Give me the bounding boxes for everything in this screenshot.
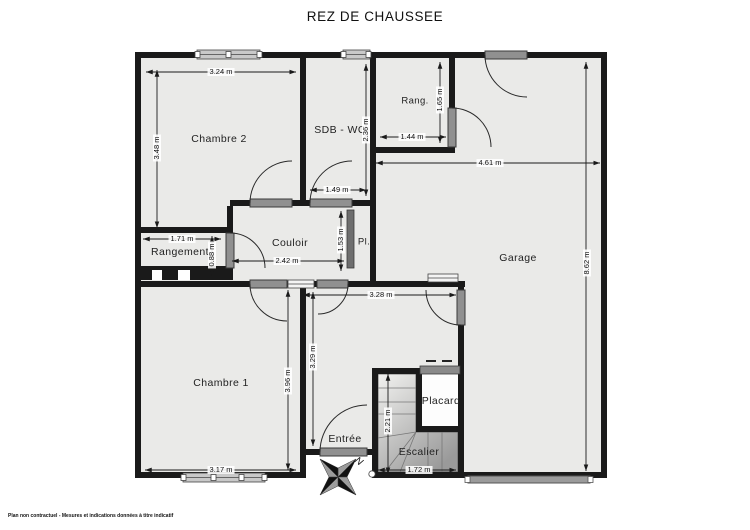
room-label-rang: Rang.	[401, 96, 428, 107]
floor-plan-drawing: N	[0, 0, 750, 530]
door-panel-entree-garage	[457, 290, 465, 325]
dimension-label-rang-height: 1.65 m	[436, 87, 444, 114]
room-label-garage: Garage	[499, 252, 536, 264]
door-panel-chambre2	[250, 199, 292, 207]
dimension-label-chambre1-width: 3.17 m	[208, 466, 235, 474]
dimension-label-couloir-width: 2.42 m	[274, 257, 301, 265]
room-label-pl: Pl.	[358, 237, 370, 248]
dimension-label-escalier-height: 2.21 m	[384, 408, 392, 435]
dimension-label-escalier-width: 1.72 m	[406, 466, 433, 474]
disclaimer-text: Plan non contractuel - Mesures et indica…	[8, 513, 173, 519]
dimension-label-chambre2-height: 3.48 m	[153, 135, 161, 162]
window-chambre2	[195, 50, 262, 59]
room-label-placard: Placard	[422, 395, 460, 407]
door-panel-chambre1	[250, 280, 287, 288]
room-label-couloir: Couloir	[272, 237, 308, 249]
dimension-label-rangement-height: 0.88 m	[208, 242, 216, 269]
dimension-label-sdb-width: 1.49 m	[324, 186, 351, 194]
dimension-label-garage-height: 8.62 m	[583, 250, 591, 277]
dimension-label-couloir-height: 1.53 m	[337, 227, 345, 254]
door-panel-sdb	[310, 199, 352, 207]
room-label-escalier: Escalier	[399, 446, 440, 458]
dimension-label-garage-width: 4.61 m	[477, 159, 504, 167]
dimension-label-sdb-height: 2.36 m	[362, 117, 370, 144]
door-panel-garage-top	[485, 51, 527, 59]
dimension-label-chambre2-width: 3.24 m	[208, 68, 235, 76]
window-couloir-entree	[288, 280, 314, 288]
dimension-label-rangement-width: 1.71 m	[169, 235, 196, 243]
door-panel-rangement	[226, 233, 234, 268]
window-sdb	[341, 50, 371, 59]
stair-start-marker	[369, 471, 375, 477]
dimension-label-rang-width: 1.44 m	[399, 133, 426, 141]
dimension-label-entree-height: 3.29 m	[309, 344, 317, 371]
dimension-label-entree-width: 3.28 m	[368, 291, 395, 299]
sliding-door-pl	[347, 210, 354, 268]
room-label-entree: Entrée	[328, 433, 361, 445]
room-label-sdb-wc: SDB - WC	[314, 124, 366, 136]
window-chambre1	[181, 473, 267, 482]
room-label-chambre-1: Chambre 1	[193, 377, 249, 389]
floor-plan-page: REZ DE CHAUSSEE	[0, 0, 750, 530]
door-panel-entree-hall	[317, 280, 348, 288]
garage-door	[465, 476, 593, 483]
room-label-rangement: Rangement	[151, 246, 209, 258]
door-panel-rang	[448, 108, 456, 147]
room-label-chambre-2: Chambre 2	[191, 133, 247, 145]
dimension-label-chambre1-height: 3.96 m	[284, 368, 292, 395]
window-entree-garage	[428, 274, 458, 282]
